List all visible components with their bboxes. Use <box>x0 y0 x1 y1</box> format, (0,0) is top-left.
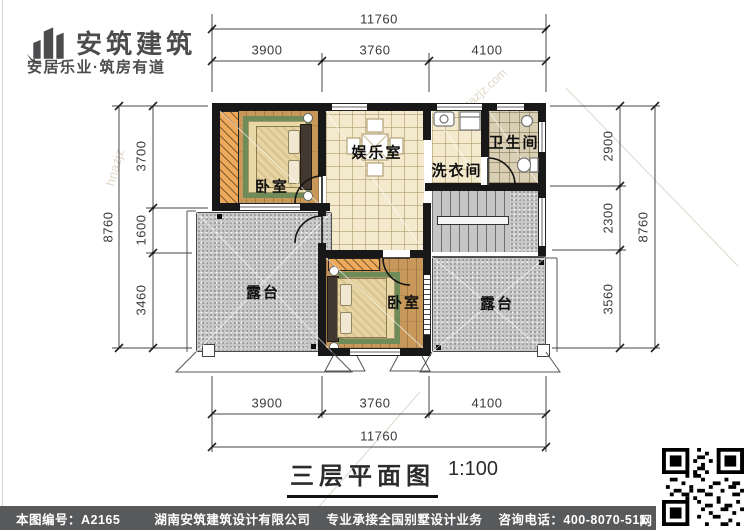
room-label-bedroom-upper: 卧室 <box>255 176 289 197</box>
company-name: 湖南安筑建筑设计有限公司 <box>154 509 310 528</box>
dim-left-seg-3: 3460 <box>134 285 149 316</box>
drawing-scale: 1:100 <box>448 456 498 481</box>
dim-top-seg-3: 4100 <box>472 43 503 58</box>
dim-left-total: 8760 <box>101 212 116 243</box>
drawing-sheet: 安筑建筑 安居乐业·筑房有道 安筑建筑 安筑建筑 hnazjz.com hnaz… <box>0 0 750 530</box>
plan-linework <box>0 0 750 530</box>
drawing-number: 本图编号：A2165 <box>16 509 120 528</box>
dim-bottom-seg-1: 3900 <box>252 396 283 411</box>
title-block: 三层平面图1:100 <box>287 456 498 498</box>
dim-right-total: 8760 <box>636 212 651 243</box>
room-label-terrace-left: 露台 <box>246 282 280 303</box>
room-label-terrace-right: 露台 <box>480 293 514 314</box>
dim-left-seg-1: 3700 <box>134 141 149 172</box>
dim-top-seg-1: 3900 <box>252 43 283 58</box>
service-text: 专业承接全国别墅设计业务 <box>326 509 482 528</box>
dim-bottom-seg-3: 4100 <box>472 396 503 411</box>
dim-right-seg-1: 2900 <box>601 131 616 162</box>
dim-bottom-seg-2: 3760 <box>360 396 391 411</box>
dim-right-seg-3: 3560 <box>601 284 616 315</box>
qr-code-pattern <box>662 448 744 526</box>
dim-top-seg-2: 3760 <box>360 43 391 58</box>
web-label: 网 <box>639 510 652 529</box>
room-label-bathroom: 卫生间 <box>488 132 539 153</box>
dim-top-total: 11760 <box>360 12 398 27</box>
room-label-entertainment: 娱乐室 <box>351 142 402 163</box>
footer-bar: 本图编号：A2165 湖南安筑建筑设计有限公司 专业承接全国别墅设计业务 咨询电… <box>0 506 750 530</box>
dim-right-seg-2: 2300 <box>601 203 616 234</box>
drawing-title: 三层平面图 <box>287 456 438 498</box>
phone-text: 咨询电话：400-8070-511 <box>498 509 646 528</box>
qr-code <box>656 443 750 530</box>
dim-bottom-total: 11760 <box>360 429 398 444</box>
room-label-bedroom-lower: 卧室 <box>387 292 421 313</box>
room-label-laundry: 洗衣间 <box>431 160 482 181</box>
dim-left-seg-2: 1600 <box>134 215 149 246</box>
